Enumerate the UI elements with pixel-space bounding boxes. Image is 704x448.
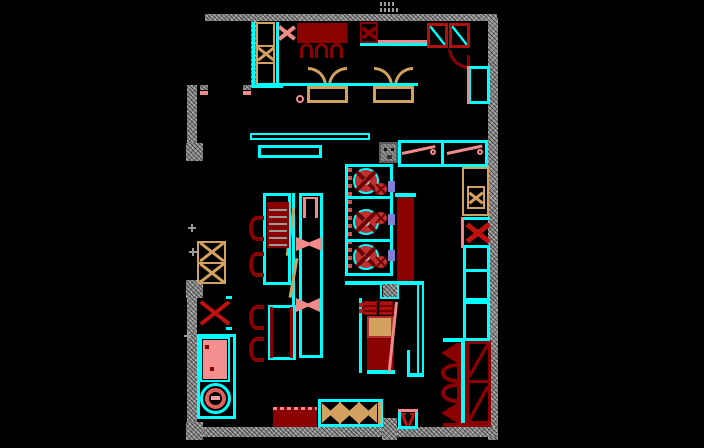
cabinet-x-symbol (199, 264, 224, 281)
floor-drain-box (398, 409, 418, 429)
cook-line-divider (345, 196, 393, 199)
booth-back-line (258, 83, 418, 86)
floor-drain-edge (398, 409, 418, 412)
corridor-line (417, 282, 419, 377)
wall-left-upper (187, 85, 197, 143)
booth-bank-divider (466, 380, 491, 383)
booth-table-2 (373, 86, 414, 103)
burner-hub (363, 254, 370, 261)
chair-scallop (330, 43, 343, 58)
vestibule-edge (467, 66, 470, 104)
range-body (397, 197, 414, 281)
cabinet-x-symbol (467, 186, 485, 209)
stub-line (463, 248, 466, 269)
fryer-basket-2 (379, 301, 393, 315)
counter-line-cyan (360, 43, 428, 46)
bench-darkred (273, 407, 317, 427)
vestibule-box (468, 66, 490, 104)
booth-seat-arc (441, 383, 457, 403)
pink-marker-dot (296, 95, 304, 103)
wall-top (205, 14, 497, 21)
bench-bar (358, 402, 360, 424)
column-left-1 (186, 143, 203, 161)
counter-edge-left (252, 22, 255, 86)
bench-bar (339, 402, 341, 424)
control-knob (388, 250, 395, 261)
control-knob (388, 214, 395, 225)
burner-hub (363, 219, 370, 226)
sink-counter-divider (441, 140, 444, 167)
cabinet-x-symbol (199, 243, 224, 260)
fryer-basket-1 (363, 301, 377, 315)
booth-bank-base (443, 423, 491, 427)
booth-bank-spine (457, 343, 461, 423)
brace-tick (226, 296, 232, 299)
chair-fan (249, 337, 264, 362)
plus-mark-1 (188, 224, 196, 232)
wall-bottom (203, 427, 497, 437)
shelf-rack-ladder (267, 202, 289, 248)
booth-seat-triangle (441, 403, 457, 423)
table-edge-bar (270, 307, 273, 358)
faucet-symbol-1 (430, 149, 436, 155)
chair-scallop (315, 43, 328, 58)
door-panel-2 (449, 23, 470, 48)
burner-small-3 (375, 256, 387, 268)
drain-dot (205, 345, 209, 349)
faucet-symbol-2 (477, 149, 483, 155)
right-unit-box-1 (463, 269, 490, 301)
cabinet-shelf-line (256, 62, 275, 64)
cook-line-divider (345, 239, 393, 242)
threshold-tick-right (243, 91, 251, 95)
appliance-dot (384, 148, 387, 151)
chair-fan (249, 216, 264, 241)
appliance-dot (391, 148, 394, 151)
level-annotation (380, 8, 398, 12)
wall-x-brace (200, 296, 230, 330)
level-annotation (380, 2, 396, 6)
bench-bar (378, 402, 381, 424)
cabinet-x-symbol (257, 46, 274, 62)
appliance-dot (387, 155, 392, 159)
counter-tan-box (367, 316, 393, 338)
equipment-x-darkred (360, 22, 378, 43)
booth-bank-diagonal (469, 344, 488, 377)
door-panel-1 (427, 23, 448, 48)
column-bottom-mid (382, 418, 397, 440)
equipment-x-red (466, 219, 489, 246)
fryer-knob (359, 303, 363, 307)
plus-mark-3 (184, 332, 191, 339)
rack-bracket-hook (310, 197, 318, 199)
burner-small-2 (375, 212, 387, 224)
threshold-tick-left (200, 91, 208, 95)
booth-bank-diagonal (469, 386, 488, 421)
booth-bank-center-line (461, 341, 465, 427)
booth-table-1 (307, 86, 348, 103)
corridor-line (422, 282, 424, 377)
rack-bracket (303, 197, 306, 218)
fryer-knob (359, 309, 363, 313)
chair-scallop (300, 43, 313, 58)
round-equipment-slot (211, 396, 220, 400)
cook-line-edge-dashes (348, 168, 352, 272)
corridor-line-vert (407, 350, 410, 374)
x-unit-edge (461, 217, 464, 248)
wall-left-lower (187, 298, 197, 422)
door-jamb-left (200, 85, 208, 90)
right-unit-box-2 (463, 301, 490, 341)
floor-plan-canvas (0, 0, 704, 448)
drain-dot (210, 367, 214, 371)
brace-tick (226, 327, 232, 330)
control-knob (388, 181, 395, 192)
bench-top-dashes (273, 407, 317, 410)
equipment-x-pink (278, 23, 295, 43)
plus-mark-2 (189, 248, 197, 256)
burner-small-1 (375, 183, 387, 195)
booth-seat-triangle (441, 343, 457, 363)
door-jamb-right (243, 85, 251, 90)
rack-bracket (315, 197, 318, 218)
stub-line (487, 248, 490, 269)
chair-fan (249, 305, 264, 330)
valve-serif (410, 413, 415, 415)
booth-seat-arc (441, 363, 457, 383)
valve-serif (401, 413, 406, 415)
gray-hatch-box (383, 284, 397, 297)
pass-shelf-long (250, 133, 370, 140)
burner-hub (363, 178, 370, 185)
column-left-corner (186, 422, 203, 440)
pass-shelf-short (258, 145, 322, 158)
chair-fan (249, 252, 264, 277)
appliance-gray-box (379, 142, 398, 163)
table-edge-bar (290, 307, 293, 358)
dining-table-top (297, 23, 347, 43)
